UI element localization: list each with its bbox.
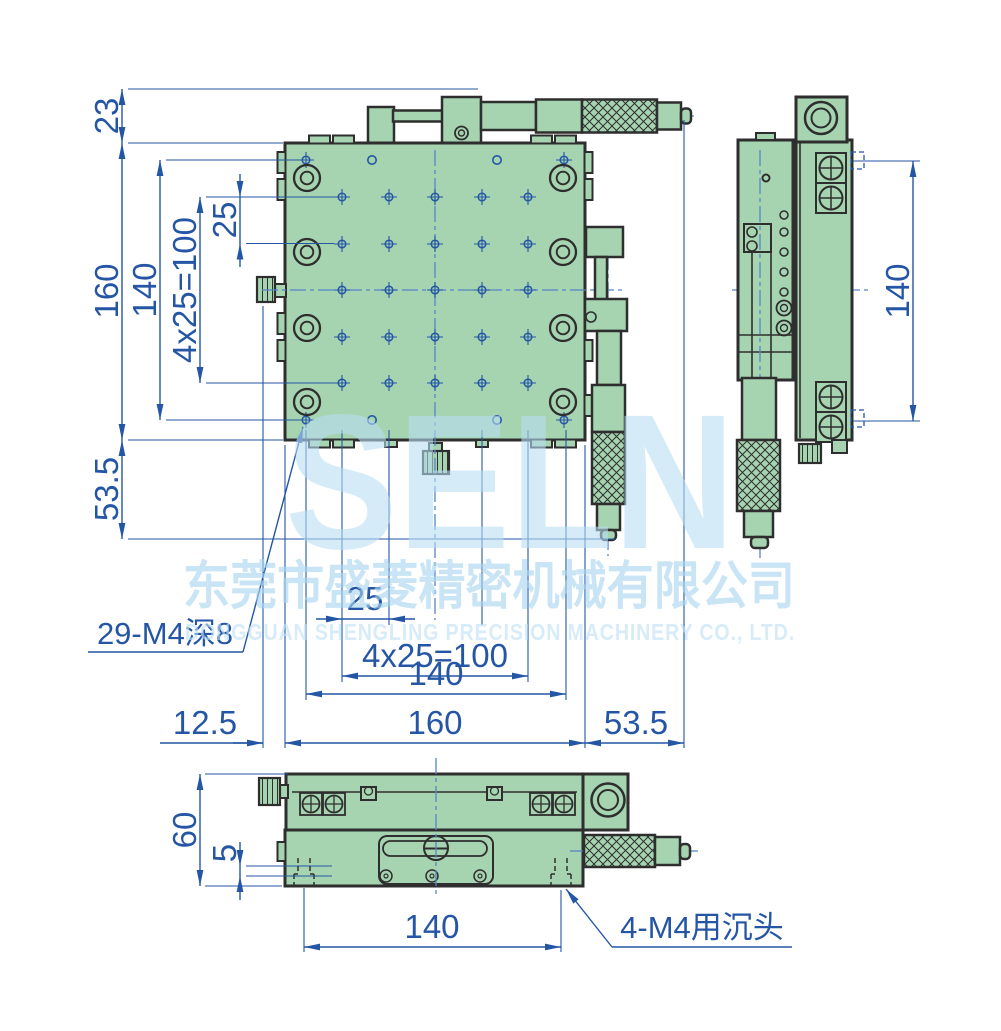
dim-pitch-vertical: 4x25=100 — [166, 197, 203, 383]
dim-text: 4x25=100 — [166, 217, 203, 363]
dim-stage-height: 160 — [88, 143, 125, 440]
dim-text: 140 — [404, 908, 459, 945]
dim-right-overhang: 53.5 — [585, 704, 684, 743]
front-view — [259, 758, 698, 894]
dim-text: 23 — [88, 98, 125, 135]
dim-bottom-overhang: 53.5 — [88, 440, 125, 539]
dim-hole-span-vertical: 140 — [126, 160, 163, 420]
watermark-company-cn: 东莞市盛菱精密机械有限公司 — [183, 558, 795, 616]
dim-text: 140 — [126, 262, 163, 317]
dim-pitch-single-vertical: 25 — [206, 174, 243, 267]
watermark-logo: SELN — [285, 374, 735, 589]
dim-side-height: 140 — [879, 161, 916, 421]
knurled-thimble — [737, 440, 780, 511]
dim-stage-width: 160 — [285, 704, 585, 743]
knurled-thimble — [582, 100, 657, 133]
dim-top-offset: 23 — [88, 89, 125, 143]
label-text: 4-M4用沉头 — [620, 910, 784, 945]
dim-text: 60 — [166, 812, 203, 849]
watermark: SELN 东莞市盛菱精密机械有限公司 DONGGUAN SHENGLING PR… — [183, 374, 795, 645]
dim-text: 140 — [879, 263, 916, 318]
dim-text: 160 — [407, 704, 462, 741]
knurled-thimble — [584, 835, 655, 867]
dim-base-plate: 5 — [206, 842, 243, 900]
dim-mount-span: 140 — [304, 908, 561, 947]
dim-text: 5 — [206, 844, 243, 862]
knob-housing — [583, 774, 628, 830]
dim-front-height: 60 — [166, 774, 203, 886]
engineering-drawing-canvas: 23 160 140 4x25=100 25 53.5 29-M4深8 — [0, 0, 1001, 1031]
side-view — [737, 97, 864, 560]
label-counterbore: 4-M4用沉头 — [566, 889, 792, 947]
dim-text: 160 — [88, 263, 125, 318]
dim-text: 25 — [206, 202, 243, 239]
watermark-company-en: DONGGUAN SHENGLING PRECISION MACHINERY C… — [185, 619, 795, 645]
dim-left-offset: 12.5 — [160, 704, 263, 743]
dim-text: 53.5 — [604, 704, 668, 741]
knob-housing — [796, 97, 847, 142]
xy-stage-drawing: 23 160 140 4x25=100 25 53.5 29-M4深8 — [0, 0, 1001, 1031]
dim-text: 140 — [408, 655, 463, 692]
dim-hole-span-horizontal: 140 — [306, 655, 566, 694]
dim-text: 53.5 — [88, 457, 125, 521]
dim-text: 12.5 — [173, 704, 237, 741]
